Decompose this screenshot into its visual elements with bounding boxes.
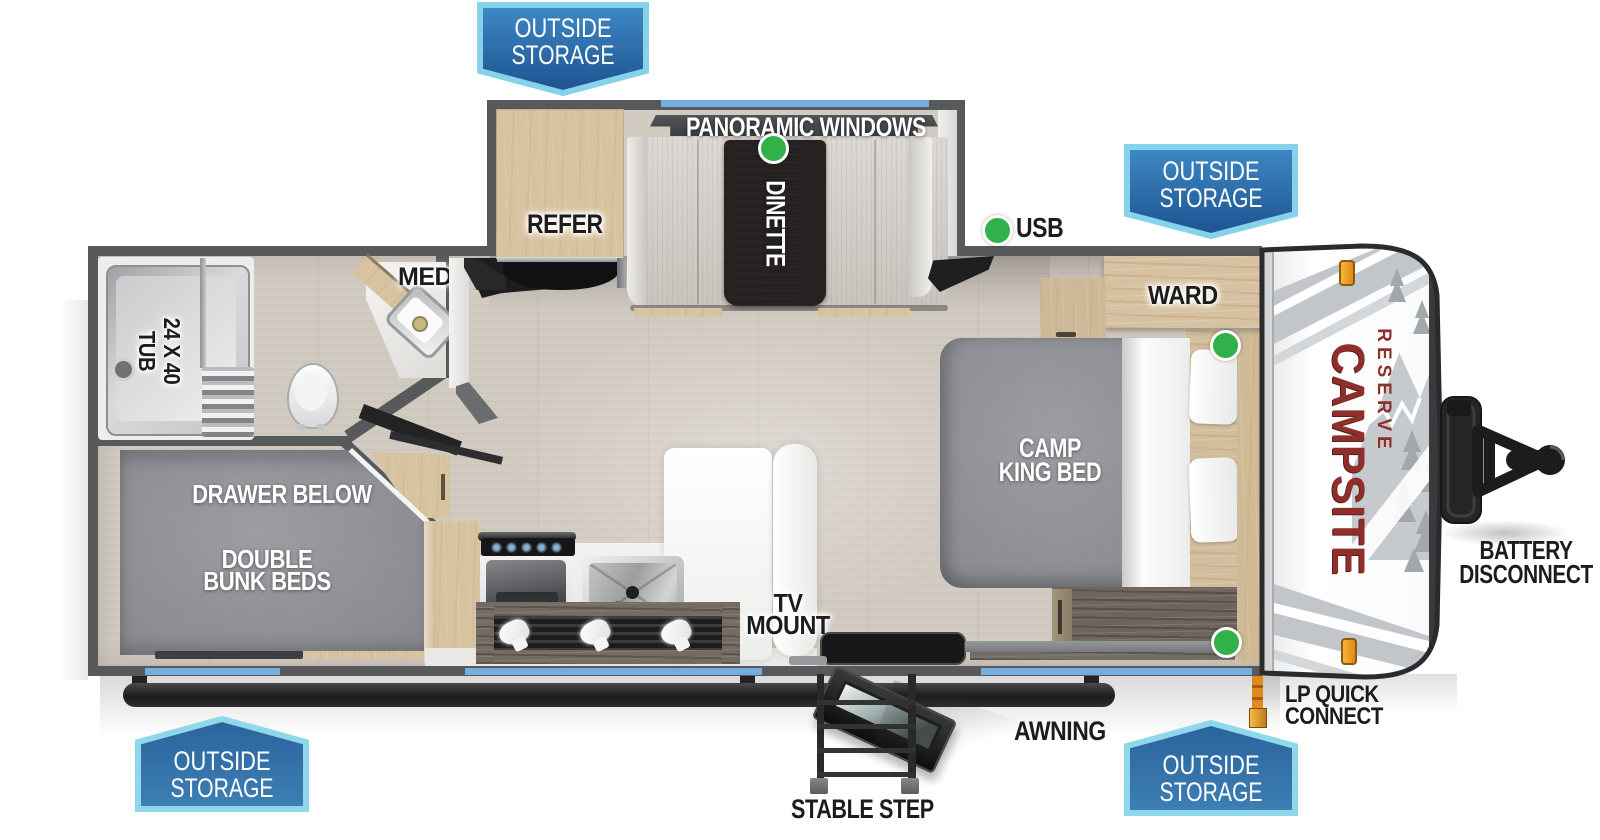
svg-text:STORAGE: STORAGE — [1160, 777, 1263, 807]
svg-text:STORAGE: STORAGE — [1160, 183, 1263, 213]
svg-text:OUTSIDE: OUTSIDE — [1163, 750, 1260, 780]
svg-text:OUTSIDE: OUTSIDE — [174, 746, 271, 776]
svg-text:STORAGE: STORAGE — [171, 773, 274, 803]
svg-text:OUTSIDE: OUTSIDE — [1163, 156, 1260, 186]
svg-text:OUTSIDE: OUTSIDE — [515, 13, 612, 43]
svg-text:STORAGE: STORAGE — [512, 40, 615, 70]
